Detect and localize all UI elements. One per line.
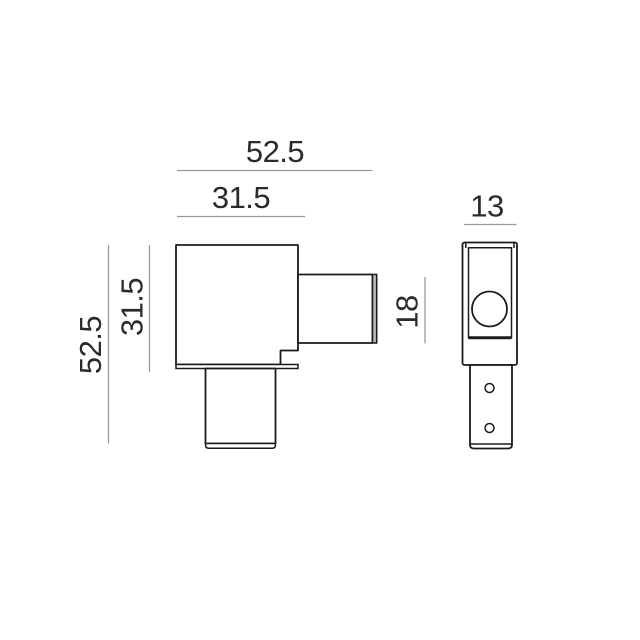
side-view-round-opening (472, 292, 507, 327)
dim-label-total-width: 52.5 (246, 134, 304, 169)
front-view (176, 245, 377, 448)
dim-label-body-width: 31.5 (212, 180, 270, 215)
side-view (463, 243, 518, 449)
front-view-bottom-stub-end-cap (206, 444, 276, 449)
dim-label-side-width: 13 (470, 189, 503, 224)
front-view-right-stub-end-cap (373, 275, 377, 344)
front-view-right-stub (298, 275, 373, 344)
dim-label-body-height: 31.5 (115, 278, 150, 336)
technical-drawing-page: 52.5 31.5 52.5 31.5 18 13 (0, 0, 640, 640)
side-view-bottom-stub (470, 365, 512, 449)
dim-label-stub-height: 18 (390, 295, 425, 328)
dim-label-total-height: 52.5 (73, 316, 108, 374)
technical-drawing-canvas: 52.5 31.5 52.5 31.5 18 13 (0, 0, 640, 640)
front-view-main-body (176, 245, 298, 365)
front-view-bottom-stub (206, 369, 276, 444)
